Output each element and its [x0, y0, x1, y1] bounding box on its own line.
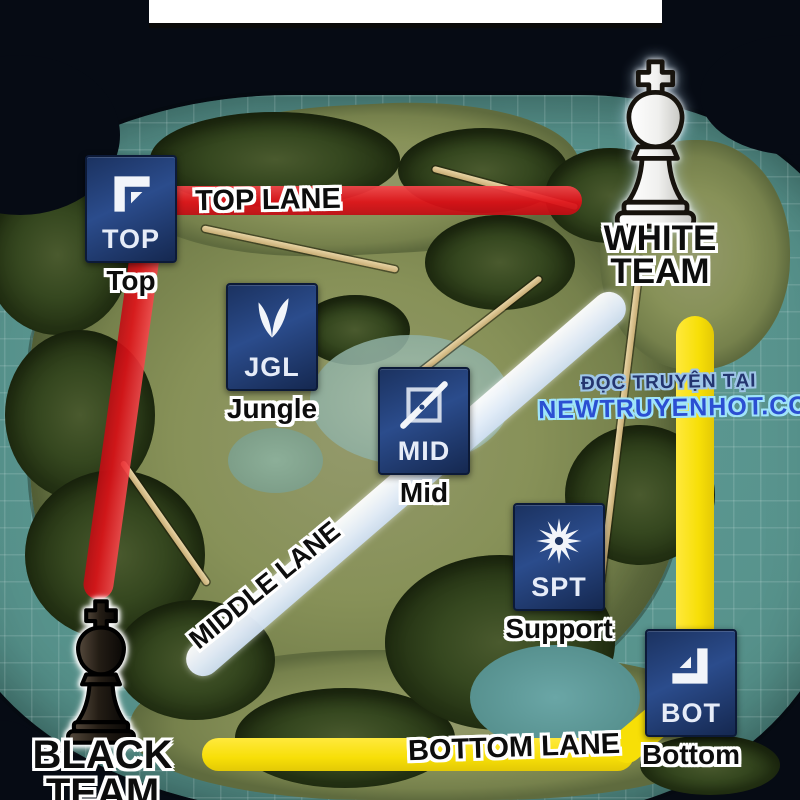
jungle-icon [243, 292, 301, 350]
bot-lane-icon [662, 638, 720, 696]
badge-card: BOT [645, 629, 737, 737]
black-team-line1: BLACK [15, 736, 190, 774]
role-badge-jungle: JGL Jungle [226, 283, 318, 391]
watermark-line2: NEWTRUYENHOT.COM [538, 392, 800, 426]
role-badge-top: TOP Top [85, 155, 177, 263]
black-team-label: BLACK TEAM [15, 736, 190, 800]
site-watermark: ĐỌC TRUYỆN TẠI NEWTRUYENHOT.COM [538, 370, 800, 426]
badge-card: SPT [513, 503, 605, 611]
role-name-label: Bottom [642, 739, 740, 771]
bottom-lane-label: BOTTOM LANE [407, 729, 593, 768]
mid-lane-icon [395, 376, 453, 434]
black-team-line2: TEAM [15, 774, 190, 800]
bottom-lane-stripe-vertical [676, 316, 714, 661]
badge-abbr: SPT [515, 572, 603, 603]
support-icon [530, 512, 588, 570]
white-king-piece [598, 58, 713, 230]
badge-abbr: BOT [647, 698, 735, 729]
top-lane-label: TOP LANE [178, 182, 359, 218]
black-king-piece [42, 598, 160, 746]
role-name-label: Mid [400, 477, 448, 509]
white-team-label: WHITE TEAM [585, 222, 735, 289]
badge-abbr: JGL [228, 352, 316, 383]
badge-card: JGL [226, 283, 318, 391]
role-name-label: Support [505, 613, 612, 645]
pond [228, 428, 323, 493]
top-lane-icon [102, 164, 160, 222]
badge-abbr: TOP [87, 224, 175, 255]
badge-card: TOP [85, 155, 177, 263]
white-team-line1: WHITE [585, 222, 735, 255]
badge-abbr: MID [380, 436, 468, 467]
forest-blob [425, 215, 575, 310]
badge-card: MID [378, 367, 470, 475]
role-badge-mid: MID Mid [378, 367, 470, 475]
role-name-label: Top [106, 265, 155, 297]
speech-bubble [149, 0, 662, 28]
white-team-line2: TEAM [585, 255, 735, 288]
role-name-label: Jungle [227, 393, 317, 425]
role-badge-support: SPT Support [513, 503, 605, 611]
role-badge-bottom: BOT Bottom [645, 629, 737, 737]
comic-panel: ĐỌC TRUYỆN TẠI NEWTRUYENHOT.COM TOP Top … [0, 0, 800, 800]
